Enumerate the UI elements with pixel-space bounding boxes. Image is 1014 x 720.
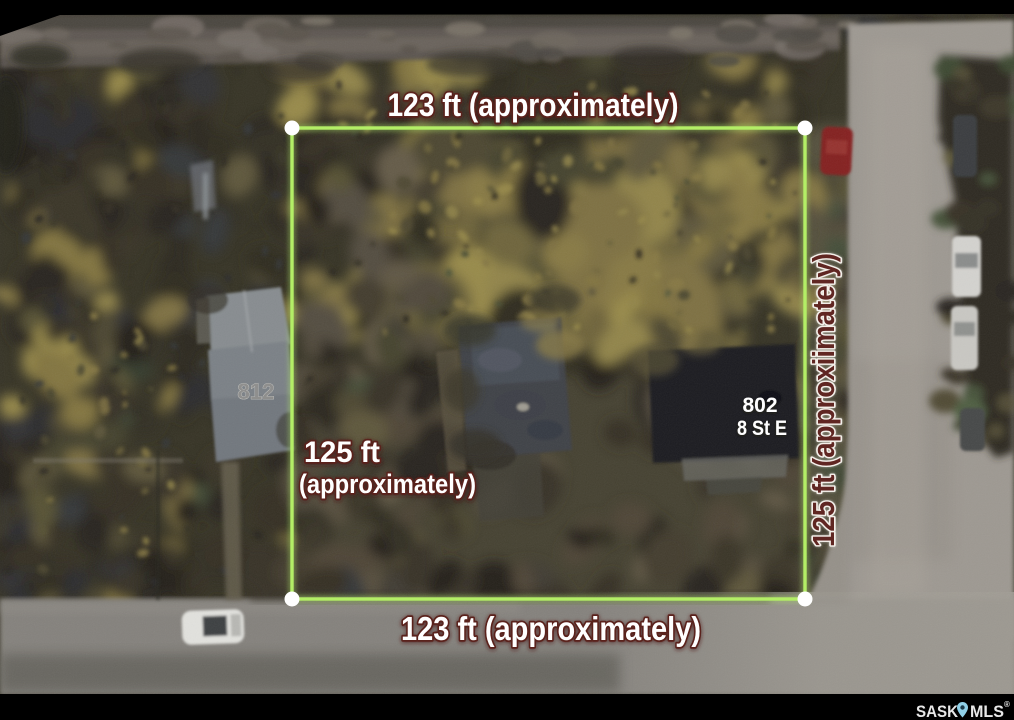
svg-text:8 St E: 8 St E [737, 417, 787, 440]
svg-text:802: 802 [742, 394, 777, 417]
svg-text:MLS: MLS [970, 702, 1004, 720]
svg-text:(approximately): (approximately) [299, 469, 476, 499]
svg-text:®: ® [1004, 700, 1010, 709]
svg-text:123 ft (approximately): 123 ft (approximately) [401, 610, 701, 647]
svg-text:125 ft (approxiimately): 125 ft (approxiimately) [806, 253, 841, 547]
svg-text:123 ft (approximately): 123 ft (approximately) [388, 87, 679, 123]
svg-text:125 ft: 125 ft [304, 436, 380, 469]
svg-text:SASK: SASK [916, 702, 959, 720]
svg-text:812: 812 [238, 379, 275, 404]
